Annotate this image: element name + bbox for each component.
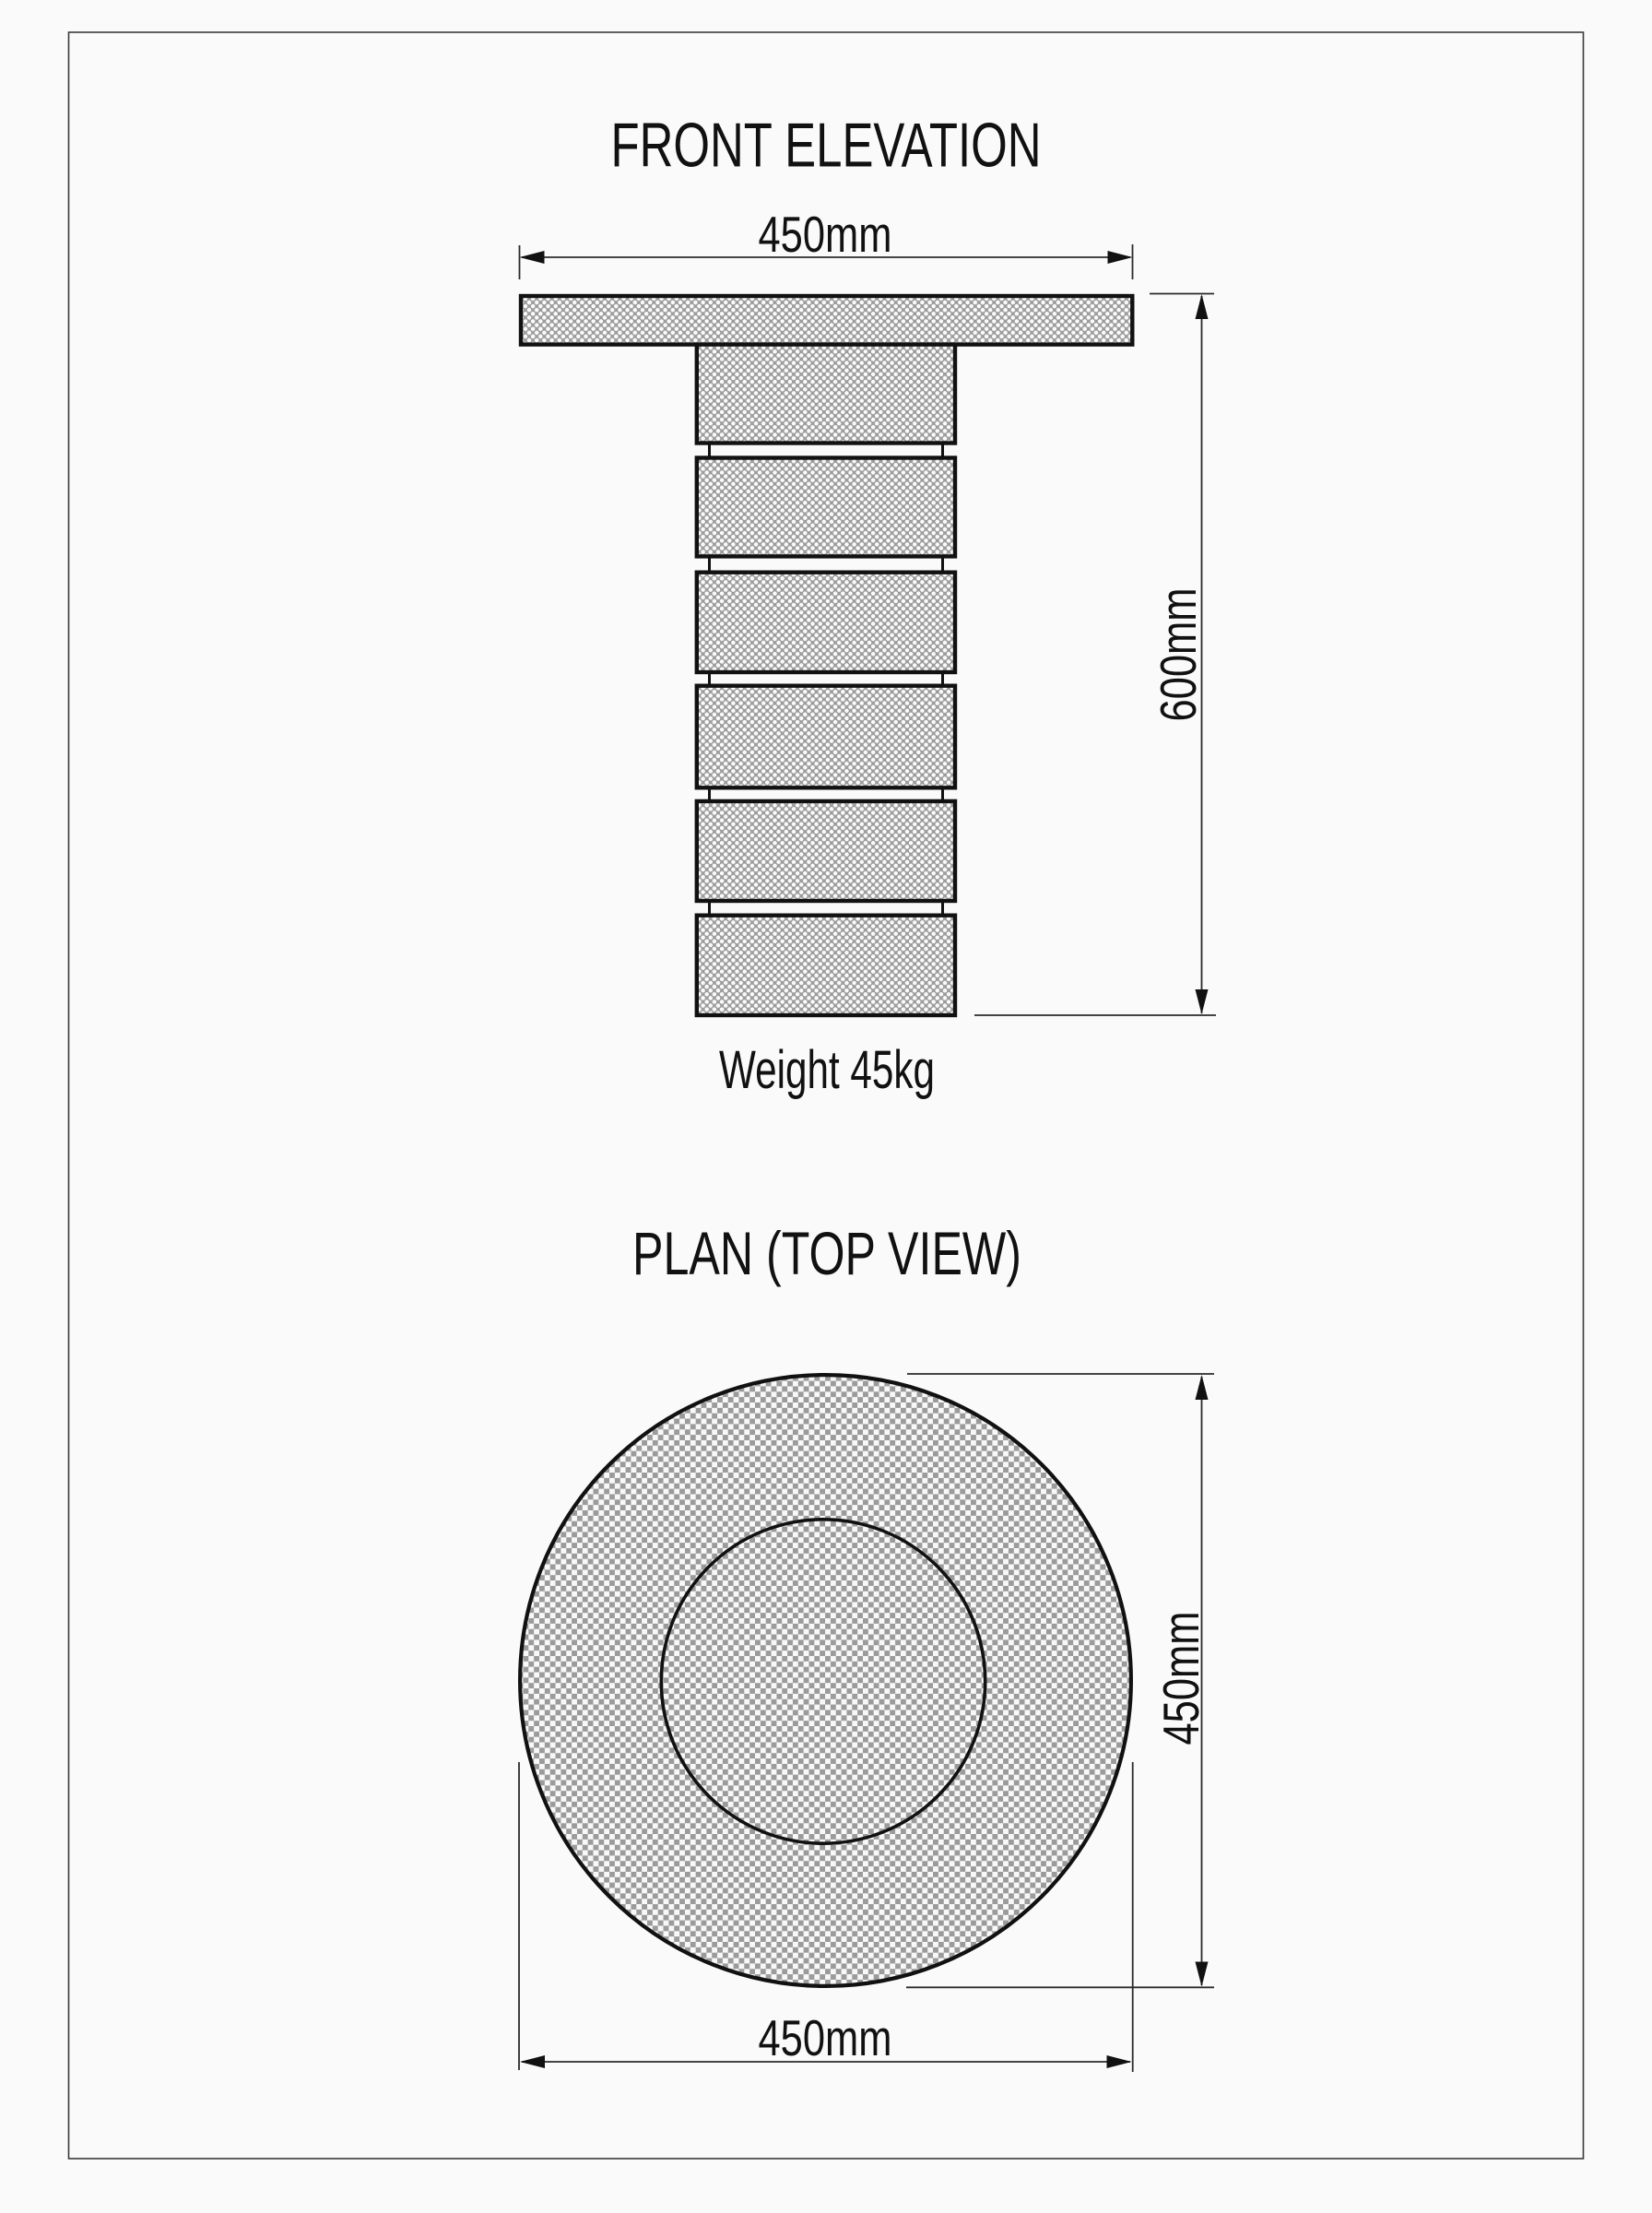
svg-text:600mm: 600mm (1150, 588, 1207, 722)
svg-text:450mm: 450mm (759, 206, 892, 263)
svg-text:PLAN (TOP VIEW): PLAN (TOP VIEW) (632, 1219, 1021, 1287)
svg-text:450mm: 450mm (1152, 1612, 1209, 1746)
svg-text:FRONT ELEVATION: FRONT ELEVATION (611, 111, 1042, 181)
svg-text:Weight 45kg: Weight 45kg (719, 1040, 935, 1100)
svg-text:450mm: 450mm (759, 2009, 892, 2066)
